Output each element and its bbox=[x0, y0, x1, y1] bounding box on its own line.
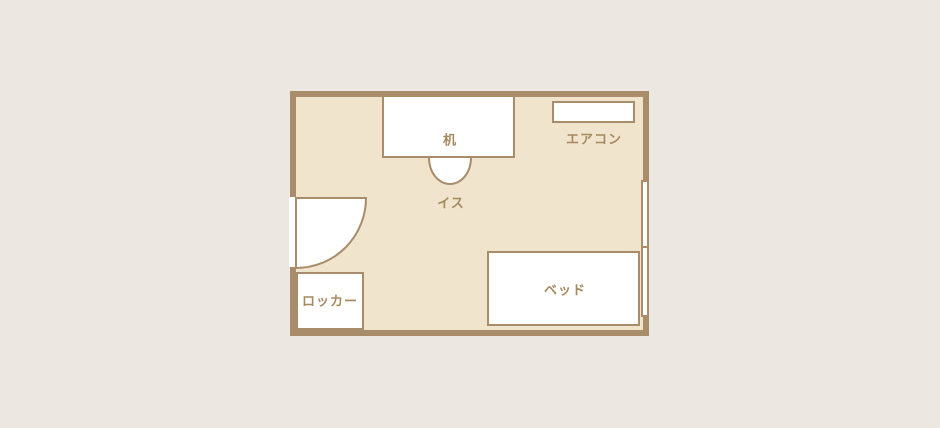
floorplan-canvas: 机 イス エアコン ロッカー ベッド bbox=[0, 0, 940, 428]
chair-label: イス bbox=[437, 198, 465, 211]
locker-label: ロッカー bbox=[302, 296, 358, 309]
air-conditioner bbox=[552, 101, 635, 123]
air-conditioner-label: エアコン bbox=[566, 134, 622, 147]
bed-label: ベッド bbox=[544, 285, 586, 298]
desk-label: 机 bbox=[443, 135, 457, 148]
window bbox=[641, 180, 649, 317]
window-divider bbox=[643, 246, 647, 248]
door-swing-icon bbox=[295, 197, 369, 271]
desk bbox=[382, 97, 515, 158]
